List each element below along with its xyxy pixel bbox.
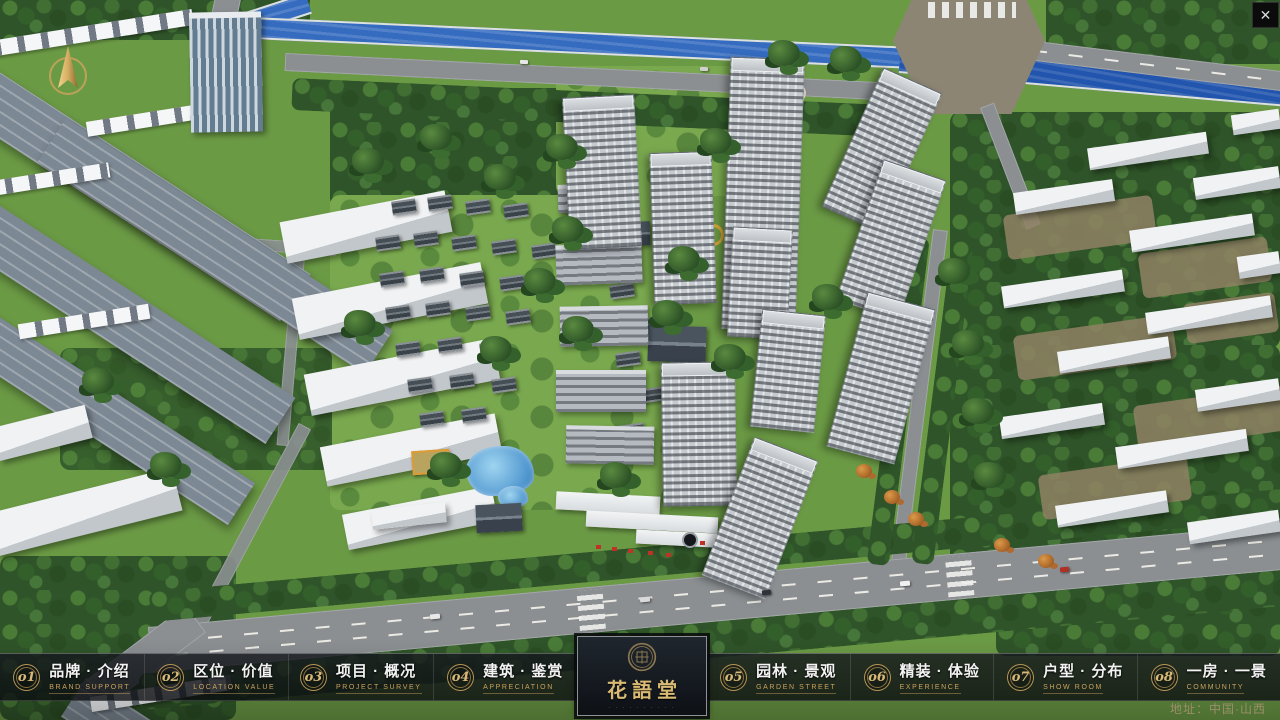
nav-caption: SHOW ROOM [1043, 684, 1103, 694]
feature-pond [682, 532, 698, 548]
tree-cluster [830, 46, 862, 72]
nav-item-location-value[interactable]: o2 区位 · 价值LOCATION VALUE [144, 654, 289, 700]
menu-group-left: o1 品牌 · 介绍BRAND SUPPORT o2 区位 · 价值LOCATI… [0, 654, 577, 700]
tree-cluster [768, 40, 800, 66]
tree-cluster [82, 368, 114, 394]
parked-car [666, 553, 671, 557]
nav-number-badge: o4 [447, 664, 474, 691]
nav-number-badge: o1 [13, 664, 40, 691]
nav-caption: PROJECT SURVEY [336, 684, 422, 694]
residential-slab [0, 468, 183, 557]
tree-cluster [714, 344, 746, 370]
orange-tree [884, 490, 900, 504]
nav-item-project-survey[interactable]: o3 项目 · 概况PROJECT SURVEY [288, 654, 433, 700]
parked-car [648, 551, 653, 555]
nav-label: 园林 · 景观 [756, 660, 836, 681]
nav-caption: LOCATION VALUE [193, 684, 275, 694]
tree-cluster [668, 246, 700, 272]
crosswalk [928, 2, 1016, 18]
nav-label: 建筑 · 鉴赏 [483, 660, 563, 681]
nav-number-badge: o8 [1151, 664, 1178, 691]
tree-cluster [938, 258, 970, 284]
tree-cluster [352, 148, 384, 174]
project-logo-title: 花語堂 [607, 674, 682, 703]
parked-car [596, 545, 601, 549]
car [640, 597, 650, 603]
compass-icon [42, 40, 94, 102]
nav-item-fine-decor[interactable]: o6 精装 · 体验EXPERIENCE [850, 654, 994, 700]
car [762, 590, 771, 596]
mid-rise-building [566, 425, 655, 465]
tree-cluster [344, 310, 376, 336]
tree-cluster [562, 316, 594, 342]
tree-cluster [524, 268, 556, 294]
compass-north-indicator [42, 40, 94, 107]
highrise-tower [750, 309, 826, 433]
car [900, 581, 910, 587]
parked-car [628, 549, 633, 553]
project-address: 地址：中国·山西 [1120, 700, 1280, 717]
clubhouse-roof [647, 325, 706, 363]
nav-label: 区位 · 价值 [193, 660, 273, 681]
tree-cluster [962, 398, 994, 424]
nav-label: 一房 · 一景 [1187, 660, 1267, 681]
nav-caption: APPRECIATION [483, 684, 554, 694]
crosswalk [576, 589, 606, 631]
nav-caption: GARDEN STREET [756, 684, 836, 694]
highrise-tower [649, 151, 716, 305]
tree-cluster [552, 216, 584, 242]
glass-tower [189, 11, 263, 132]
nav-label: 项目 · 概况 [336, 660, 416, 681]
nav-item-room-view[interactable]: o8 一房 · 一景COMMUNITY [1137, 654, 1280, 700]
nav-caption: BRAND SUPPORT [49, 684, 130, 694]
sales-presentation-window: ✕ o1 品牌 · 介绍BRAND SUPPORT o2 区位 · 价值LOCA… [0, 0, 1280, 720]
close-icon: ✕ [1260, 7, 1272, 23]
car [520, 60, 528, 64]
close-button[interactable]: ✕ [1252, 2, 1279, 28]
nav-item-garden-landscape[interactable]: o5 园林 · 景观GARDEN STREET [707, 654, 850, 700]
car [1060, 567, 1069, 573]
seal-emblem-icon [627, 642, 657, 672]
nav-label: 户型 · 分布 [1043, 660, 1123, 681]
aerial-map-view[interactable] [0, 0, 1280, 720]
orange-tree [1038, 554, 1054, 568]
nav-item-unit-layout[interactable]: o7 户型 · 分布SHOW ROOM [993, 654, 1137, 700]
tree-cluster [974, 462, 1006, 488]
nav-item-architecture[interactable]: o4 建筑 · 鉴赏APPRECIATION [433, 654, 578, 700]
nav-item-brand-intro[interactable]: o1 品牌 · 介绍BRAND SUPPORT [0, 654, 144, 700]
nav-number-badge: o6 [864, 664, 891, 691]
tree-cluster [600, 462, 632, 488]
parked-car [700, 541, 705, 545]
tree-cluster [700, 128, 732, 154]
tree-cluster [420, 124, 452, 150]
highrise-tower [661, 361, 738, 506]
tree-cluster [546, 134, 578, 160]
crosswalk [945, 555, 975, 597]
entrance-gate-roof [475, 503, 522, 533]
orange-tree [994, 538, 1010, 552]
nav-number-badge: o5 [720, 664, 747, 691]
mid-rise-building [555, 243, 642, 286]
orange-tree [908, 512, 924, 526]
nav-caption: EXPERIENCE [900, 684, 961, 694]
tree-cluster [652, 300, 684, 326]
car [700, 67, 708, 71]
nav-number-badge: o3 [300, 664, 327, 691]
tree-cluster [480, 336, 512, 362]
tree-cluster [484, 164, 516, 190]
tree-cluster [430, 452, 462, 478]
orange-tree [856, 464, 872, 478]
tree-cluster [952, 330, 984, 356]
car [430, 614, 440, 620]
nav-label: 精装 · 体验 [900, 660, 980, 681]
menu-group-right: o5 园林 · 景观GARDEN STREET o6 精装 · 体验EXPERI… [707, 654, 1280, 700]
tree-cluster [812, 284, 844, 310]
nav-caption: COMMUNITY [1187, 684, 1245, 694]
nav-number-badge: o2 [157, 664, 184, 691]
nav-number-badge: o7 [1007, 664, 1034, 691]
nav-label: 品牌 · 介绍 [49, 660, 129, 681]
mid-rise-building [556, 370, 646, 412]
parked-car [612, 547, 617, 551]
tree-cluster [150, 452, 182, 478]
project-logo-panel[interactable]: 花語堂 · · · · · · · · · · [577, 636, 707, 716]
project-logo-subtitle: · · · · · · · · · · [608, 705, 675, 711]
